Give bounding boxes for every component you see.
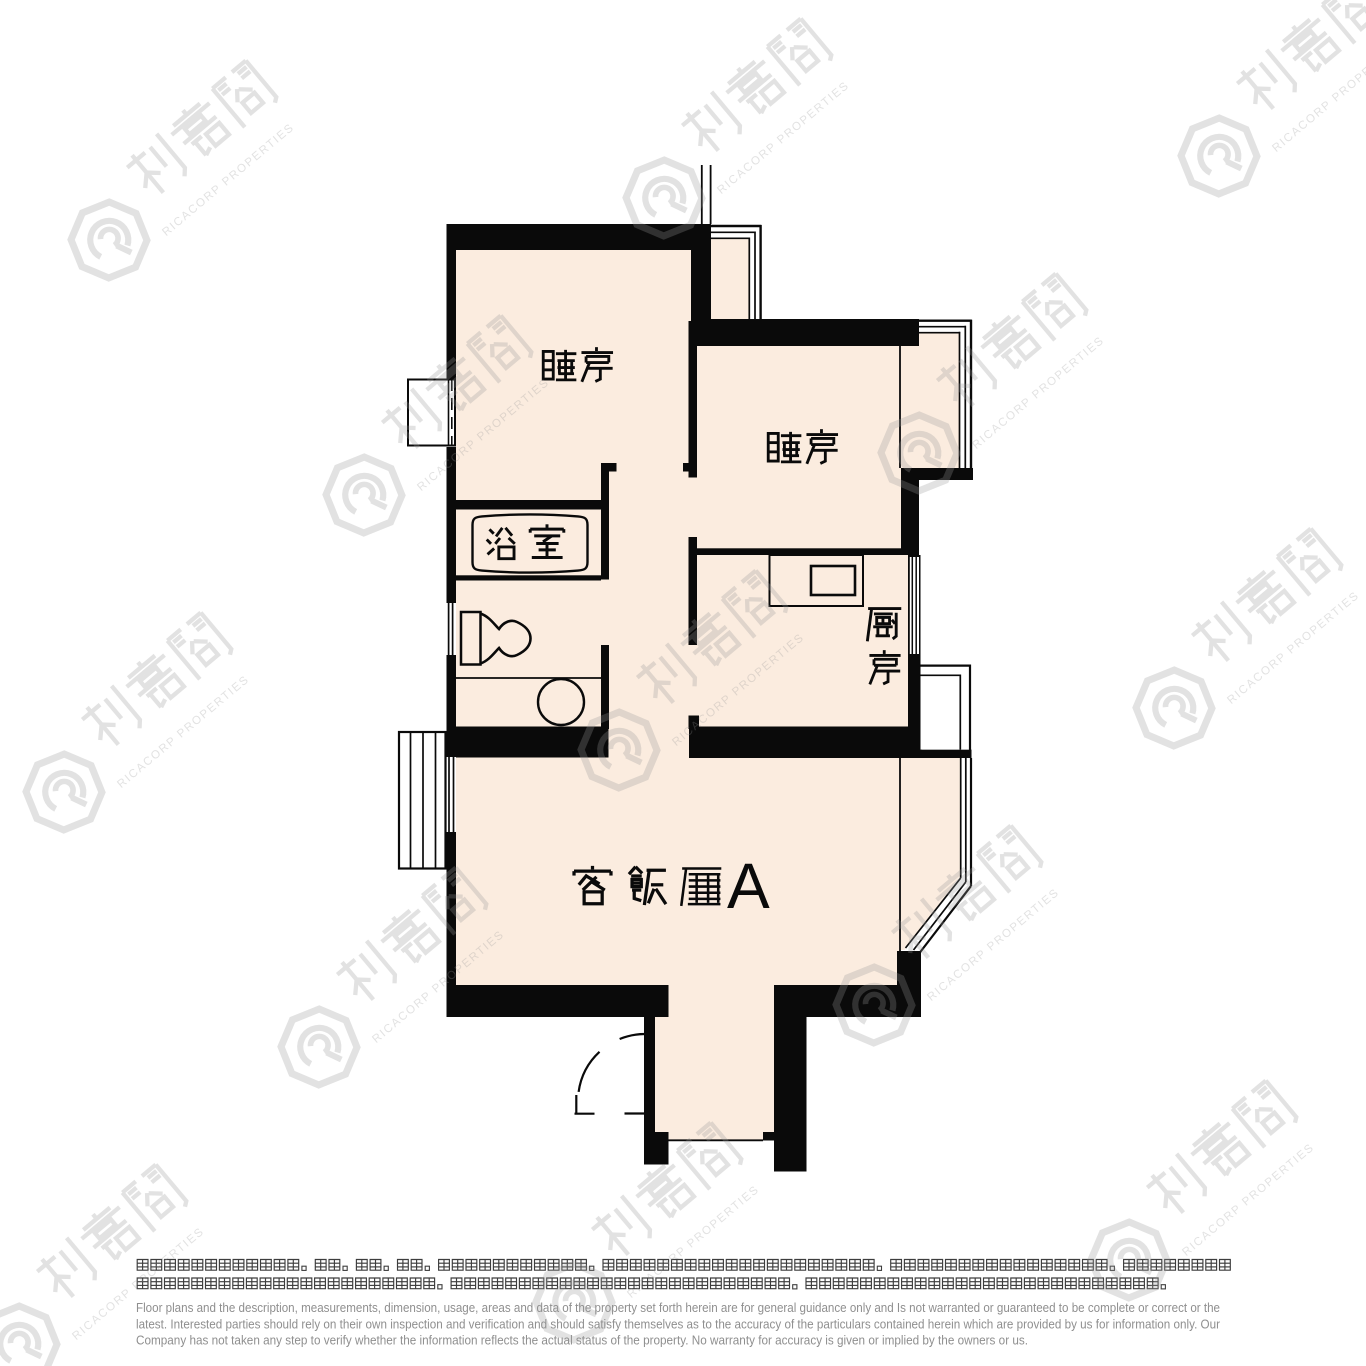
svg-text:latest. Interested parties sho: latest. Interested parties should rely o…: [136, 1317, 1221, 1332]
svg-text:Floor plans and the descriptio: Floor plans and the description, measure…: [136, 1300, 1220, 1315]
svg-text:A: A: [727, 850, 770, 922]
